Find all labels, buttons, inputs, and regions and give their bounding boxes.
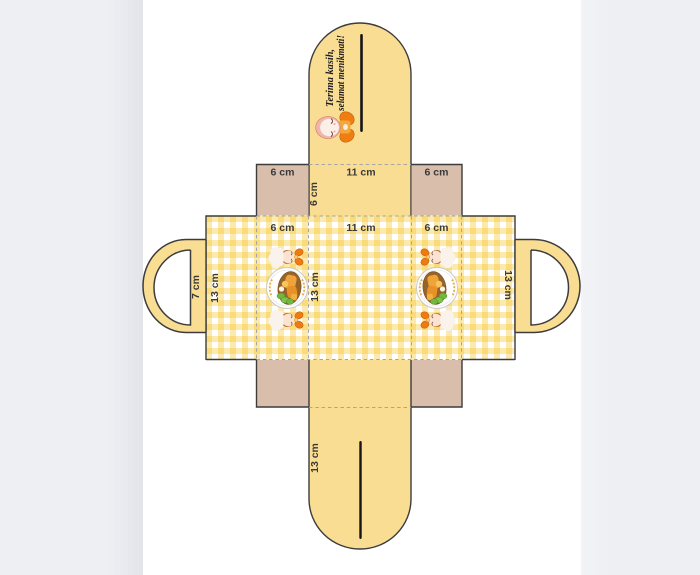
svg-text:6 cm: 6 cm [425, 222, 449, 234]
svg-text:Terima kasih,: Terima kasih, [325, 49, 336, 107]
svg-text:6 cm: 6 cm [425, 167, 449, 179]
svg-text:11 cm: 11 cm [346, 167, 375, 179]
svg-text:6 cm: 6 cm [271, 167, 295, 179]
svg-text:13 cm: 13 cm [209, 273, 221, 303]
svg-text:13 cm: 13 cm [309, 272, 321, 302]
svg-text:selamat menikmati!: selamat menikmati! [336, 35, 347, 112]
svg-text:7 cm: 7 cm [190, 275, 202, 299]
svg-text:13 cm: 13 cm [309, 443, 321, 473]
svg-text:13 cm: 13 cm [502, 270, 514, 300]
svg-text:6 cm: 6 cm [308, 182, 320, 206]
svg-text:11 cm: 11 cm [346, 222, 375, 234]
svg-text:6 cm: 6 cm [271, 222, 295, 234]
